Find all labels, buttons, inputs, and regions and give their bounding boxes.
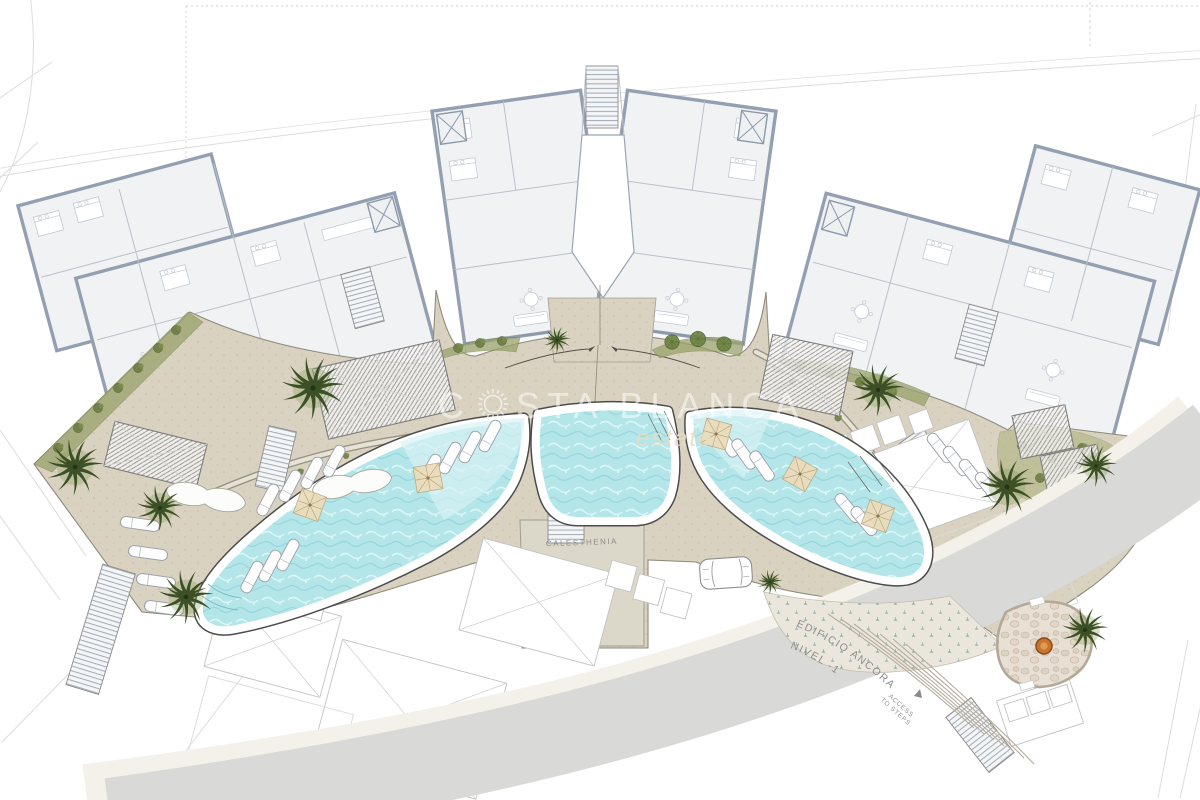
watermark-prefix: C xyxy=(438,385,471,426)
watermark-tagline: estate xyxy=(636,425,713,452)
access-arrow xyxy=(914,689,922,698)
access-to-steps-label: ACCESS TO STEPS xyxy=(879,691,917,728)
site-plan-page: CALESTHENIA EDIFICIO ANCORA NIVEL -1 ACC… xyxy=(0,0,1200,800)
parked-car xyxy=(699,556,753,590)
stairs-icon xyxy=(586,66,618,128)
bed-icon xyxy=(728,157,757,180)
stairs-icon xyxy=(66,564,135,694)
fire-pit-center xyxy=(1040,642,1047,649)
bed-icon xyxy=(449,158,478,181)
elevator-icon xyxy=(437,111,467,144)
site-plan-canvas: CALESTHENIA EDIFICIO ANCORA NIVEL -1 ACC… xyxy=(0,0,1200,800)
watermark-text: STA BLANCA xyxy=(516,385,805,426)
elevator-icon xyxy=(738,110,768,143)
car-icon xyxy=(699,556,753,590)
parasol-icon xyxy=(413,463,443,493)
